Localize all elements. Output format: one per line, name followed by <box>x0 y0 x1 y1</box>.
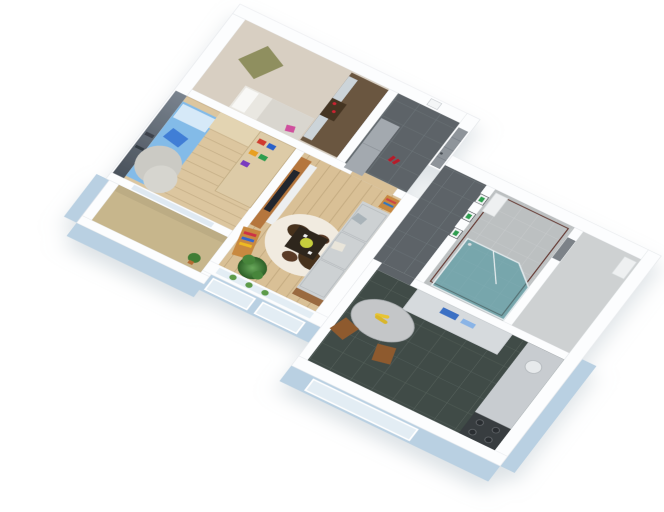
floorplan-image <box>0 0 664 512</box>
apartment-group <box>30 0 664 489</box>
floorplan-render-stage <box>0 0 664 512</box>
